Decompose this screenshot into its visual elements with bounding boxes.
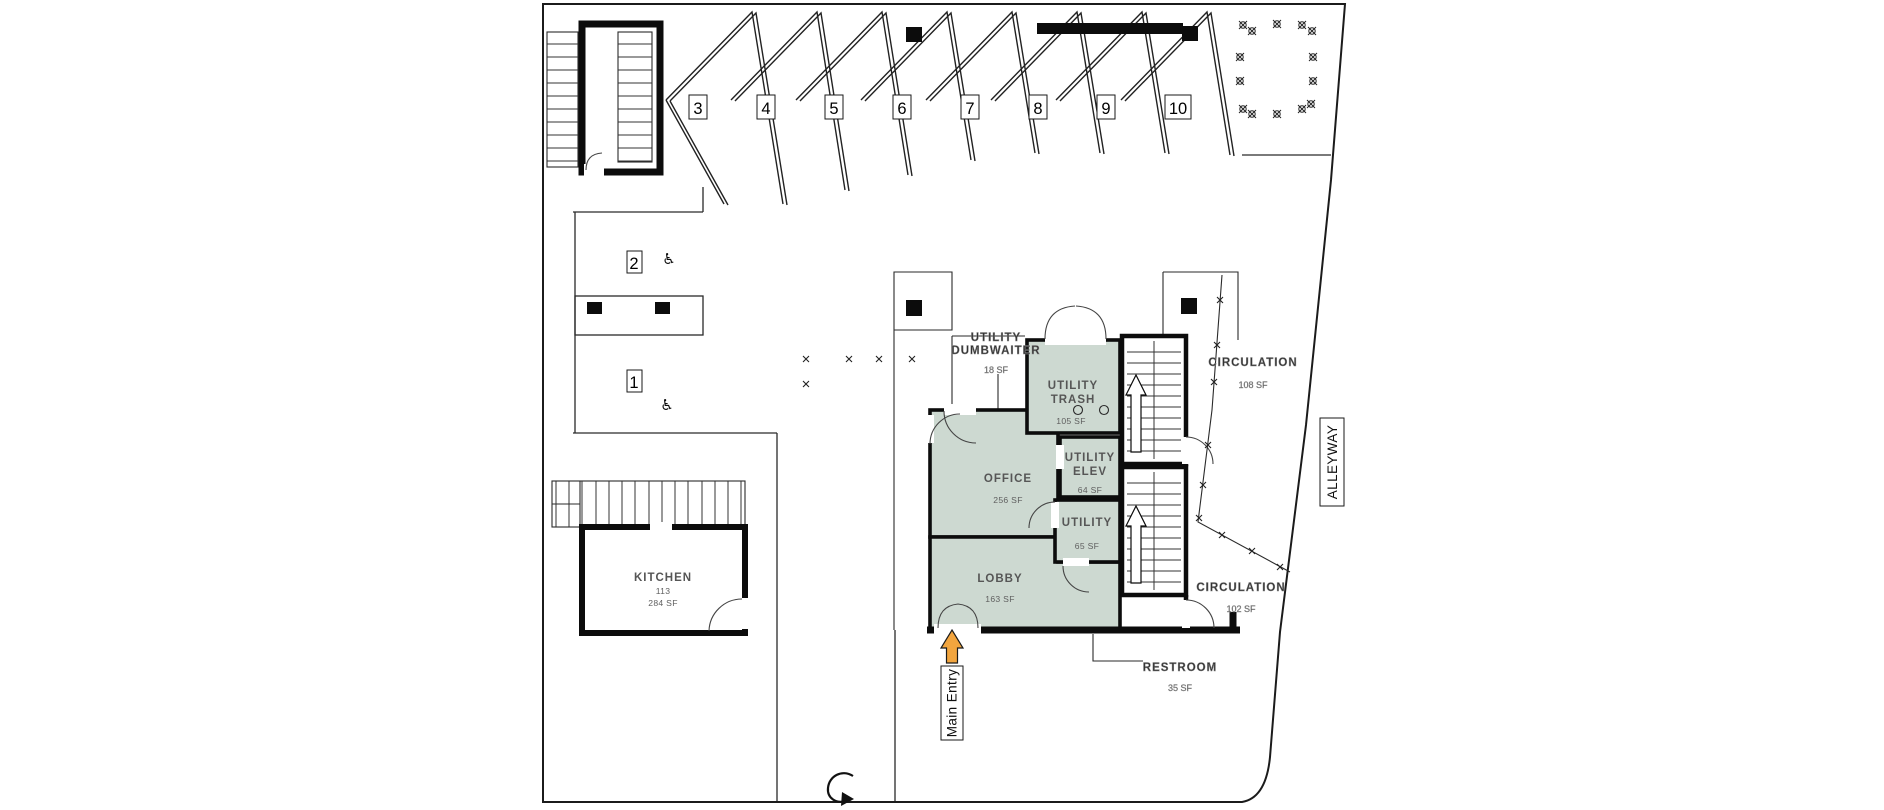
accessible-stalls: 2 1 ♿ ♿: [627, 250, 676, 414]
canopy-column: [906, 27, 922, 42]
circulation-label-upper: CIRCULATION: [1208, 357, 1297, 369]
dumbwaiter-area: 18 SF: [984, 365, 1009, 375]
south-stair-shaft: [1122, 437, 1214, 630]
floor-plan-page: 3 4 5 6 7 8 9 10 2 1 ♿ ♿: [0, 0, 1884, 810]
circulation-label-lower: CIRCULATION: [1196, 582, 1285, 594]
canopy-column: [1182, 26, 1198, 41]
room-name: LOBBY: [977, 573, 1022, 585]
stall-number: 6: [897, 100, 906, 118]
main-entry: Main Entry: [941, 630, 963, 740]
planter-band: [575, 296, 703, 335]
planting-ring: [1236, 20, 1317, 118]
north-stair-shaft: [1122, 336, 1186, 464]
kitchen-room: KITCHEN 113 284 SF: [582, 522, 749, 633]
main-entry-label: Main Entry: [945, 669, 960, 738]
restroom-label: RESTROOM: [1143, 662, 1217, 674]
alleyway-label: ALLEYWAY: [1320, 418, 1344, 506]
circulation-area-lower: 102 SF: [1226, 604, 1256, 614]
room-area: 105 SF: [1056, 416, 1086, 426]
canopy-beam: [1037, 23, 1183, 34]
stall-number: 3: [693, 100, 702, 118]
wheelchair-icon: ♿: [662, 250, 675, 268]
room-area: 163 SF: [985, 594, 1015, 604]
svg-text:ALLEYWAY: ALLEYWAY: [1325, 425, 1340, 499]
floor-plan-drawing: 3 4 5 6 7 8 9 10 2 1 ♿ ♿: [0, 0, 1884, 810]
stall-number: 5: [829, 100, 838, 118]
wheelchair-icon: ♿: [660, 396, 673, 414]
stall-number: 8: [1033, 100, 1042, 118]
room-number: 113: [656, 586, 671, 596]
stall-number: 7: [965, 100, 974, 118]
stall-number: 2: [629, 255, 638, 273]
dumbwaiter-label: DUMBWAITER: [951, 345, 1040, 357]
circulation-area-upper: 108 SF: [1238, 380, 1268, 390]
room-name: KITCHEN: [634, 572, 692, 584]
room-name: ELEV: [1073, 466, 1107, 478]
parking-stall-numbers: 3 4 5 6 7 8 9 10: [689, 95, 1191, 119]
room-name: UTILITY: [1065, 452, 1115, 464]
dumbwaiter-label: UTILITY: [971, 332, 1021, 344]
room-area: 256 SF: [993, 495, 1023, 505]
restroom-area: 35 SF: [1168, 683, 1193, 693]
restroom-leader-line: [1093, 634, 1143, 661]
utility-room: [1055, 500, 1120, 562]
room-area: 64 SF: [1078, 485, 1102, 495]
room-name: TRASH: [1051, 394, 1096, 406]
stall-number: 9: [1101, 100, 1110, 118]
room-area: 65 SF: [1075, 541, 1099, 551]
parking-stall-dividers: [666, 12, 1234, 205]
room-name: OFFICE: [984, 473, 1032, 485]
stall-number: 4: [761, 100, 770, 118]
stall-number: 1: [629, 374, 638, 392]
trellis-deck: [552, 481, 745, 527]
room-name: UTILITY: [1048, 380, 1098, 392]
stall-number: 10: [1169, 100, 1187, 118]
site-stair-block: [547, 24, 660, 179]
room-name: UTILITY: [1062, 517, 1112, 529]
room-area: 284 SF: [648, 598, 678, 608]
